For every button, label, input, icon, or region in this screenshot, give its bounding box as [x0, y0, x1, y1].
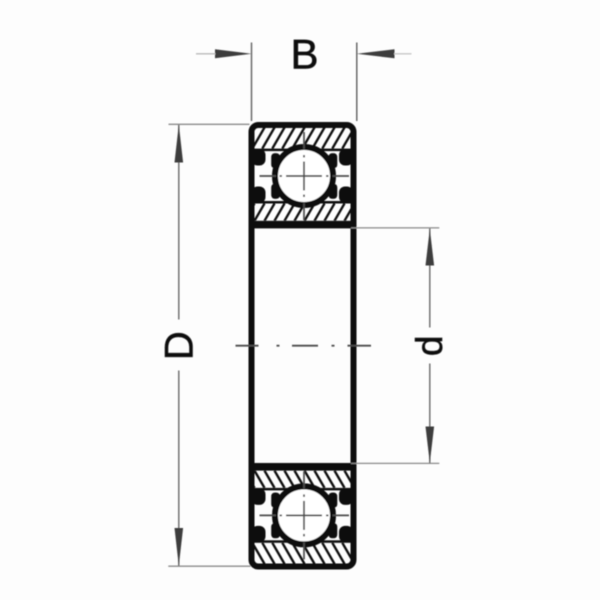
svg-text:D: D [158, 331, 202, 360]
svg-text:d: d [409, 336, 450, 357]
svg-text:B: B [290, 31, 318, 78]
